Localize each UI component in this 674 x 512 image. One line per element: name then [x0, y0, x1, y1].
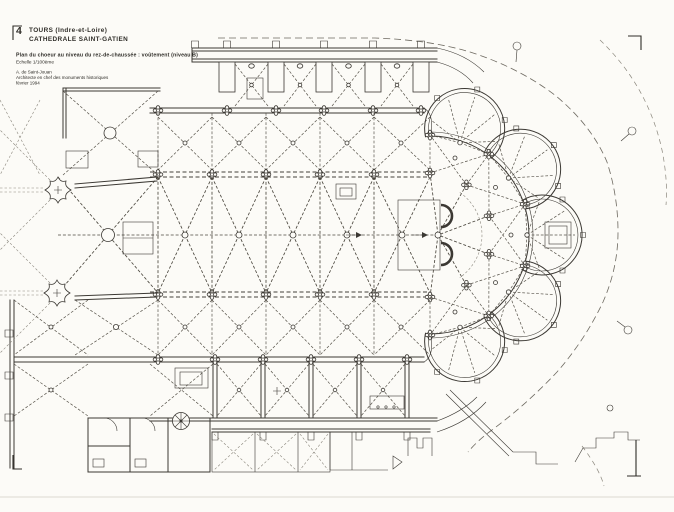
south-aisle-wall: [14, 355, 424, 365]
transept-vault-ribs: [0, 91, 158, 416]
transept-walls: [5, 88, 160, 468]
drawing-scale: Echelle 1/100ème: [16, 60, 326, 66]
sheet-building-name: CATHEDRALE SAINT-GATIEN: [29, 36, 128, 43]
terrain-sketch: [446, 390, 640, 464]
drawing-date: février 1994: [16, 81, 326, 87]
south-chapel-walls: [150, 362, 437, 440]
spiral-staircase: [173, 413, 190, 430]
choir-furnishings: [123, 184, 428, 254]
caption-block: Plan du choeur au niveau du rez-de-chaus…: [16, 52, 326, 86]
credits-block: A. de Saint-Jouan Architecte en chef des…: [16, 70, 326, 87]
figure-number: 4: [16, 25, 22, 37]
registration-marks: [0, 26, 674, 497]
bottom-annex-rooms: [212, 432, 432, 472]
choir-vault-ribs: [58, 177, 438, 293]
drawing-caption: Plan du choeur au niveau du rez-de-chaus…: [16, 52, 326, 58]
south-chapel-vault-ribs: [150, 364, 405, 416]
sheet-location: TOURS (Indre-et-Loire): [29, 27, 107, 34]
crossing-piers: [44, 177, 71, 306]
sacristy-rooms: [88, 418, 210, 472]
choir-stalls-hatched: [66, 151, 158, 168]
south-aisle-vault-ribs: [75, 300, 430, 355]
scanned-plan-page: 4 TOURS (Indre-et-Loire) CATHEDRALE SAIN…: [0, 0, 674, 512]
north-aisle-vault-ribs: [158, 113, 430, 172]
apse-hemicycle: [425, 168, 494, 302]
north-aisle-wall: [150, 106, 426, 116]
radiating-chapel-walls: [424, 48, 586, 432]
